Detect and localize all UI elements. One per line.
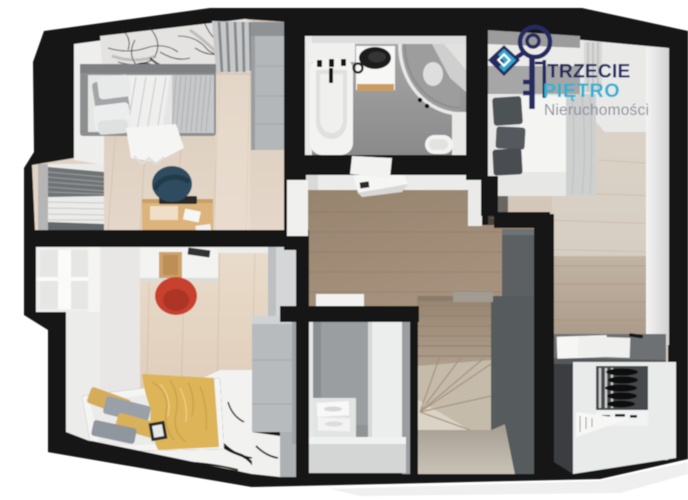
svg-text:Nieruchomości: Nieruchomości (544, 102, 649, 119)
svg-text:PIĘTRO: PIĘTRO (543, 80, 620, 102)
